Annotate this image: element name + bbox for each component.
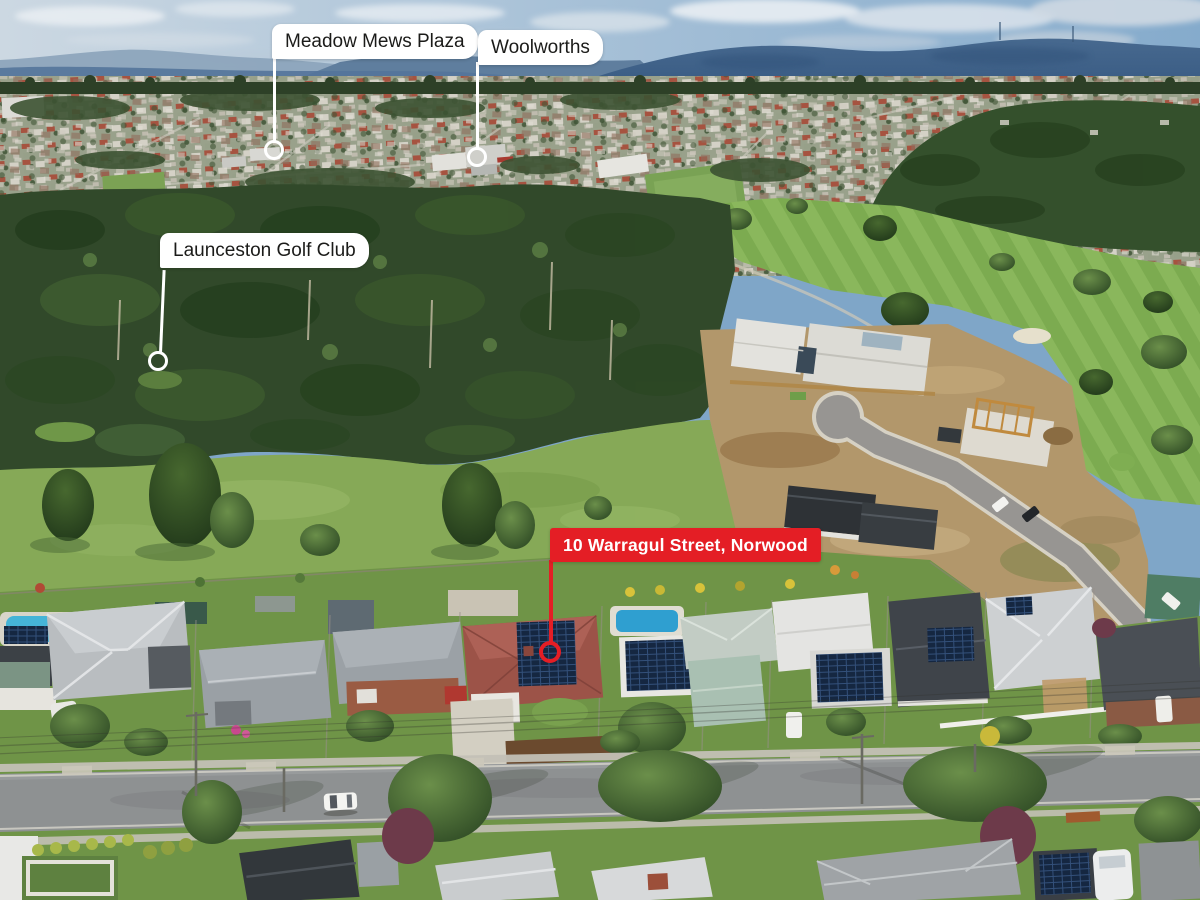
brick-chimney — [647, 873, 668, 890]
solar-panels — [1039, 853, 1091, 896]
dirt-pile — [1043, 427, 1073, 445]
shed — [328, 600, 374, 634]
solar-panels — [4, 626, 48, 644]
bottom-house-right — [1139, 840, 1200, 900]
callout-meadow-mews-plaza: Meadow Mews Plaza — [272, 24, 478, 59]
callout-property-address: 10 Warragul Street, Norwood — [550, 528, 821, 562]
callout-launceston-golf-club: Launceston Golf Club — [160, 233, 369, 268]
solar-array — [625, 639, 691, 691]
leader-meadow-mews — [273, 57, 276, 142]
marker-meadow-mews — [264, 140, 284, 160]
car-on-street — [323, 792, 358, 817]
shed — [448, 590, 518, 616]
leader-woolworths — [476, 62, 479, 149]
house-gray-hip — [46, 601, 191, 700]
rust-fence — [1066, 811, 1100, 823]
solar-array — [816, 652, 884, 702]
sand-bunker — [1013, 328, 1051, 344]
house-two-gables — [199, 640, 332, 728]
white-rv — [1092, 849, 1133, 900]
swimming-pool — [616, 610, 678, 632]
solar-panels — [927, 627, 974, 663]
bottom-house-solar — [1033, 848, 1100, 900]
street-tree — [598, 750, 722, 822]
purple-tree — [1092, 618, 1116, 638]
house-brick — [332, 622, 467, 717]
aerial-photo: Meadow Mews Plaza Woolworths Launceston … — [0, 0, 1200, 900]
aerial-scene — [0, 0, 1200, 900]
forest — [0, 184, 735, 470]
callout-woolworths: Woolworths — [478, 30, 603, 65]
marker-woolworths — [467, 147, 487, 167]
house-charcoal — [888, 592, 990, 707]
leader-property — [549, 560, 553, 643]
solar-panels — [1006, 596, 1033, 615]
street-tree — [182, 780, 242, 844]
marker-property — [539, 641, 561, 663]
street-tree — [1134, 796, 1200, 844]
site-container — [937, 427, 962, 444]
purple-tree — [382, 808, 434, 864]
shed — [255, 596, 295, 612]
marker-golf-club — [148, 351, 168, 371]
